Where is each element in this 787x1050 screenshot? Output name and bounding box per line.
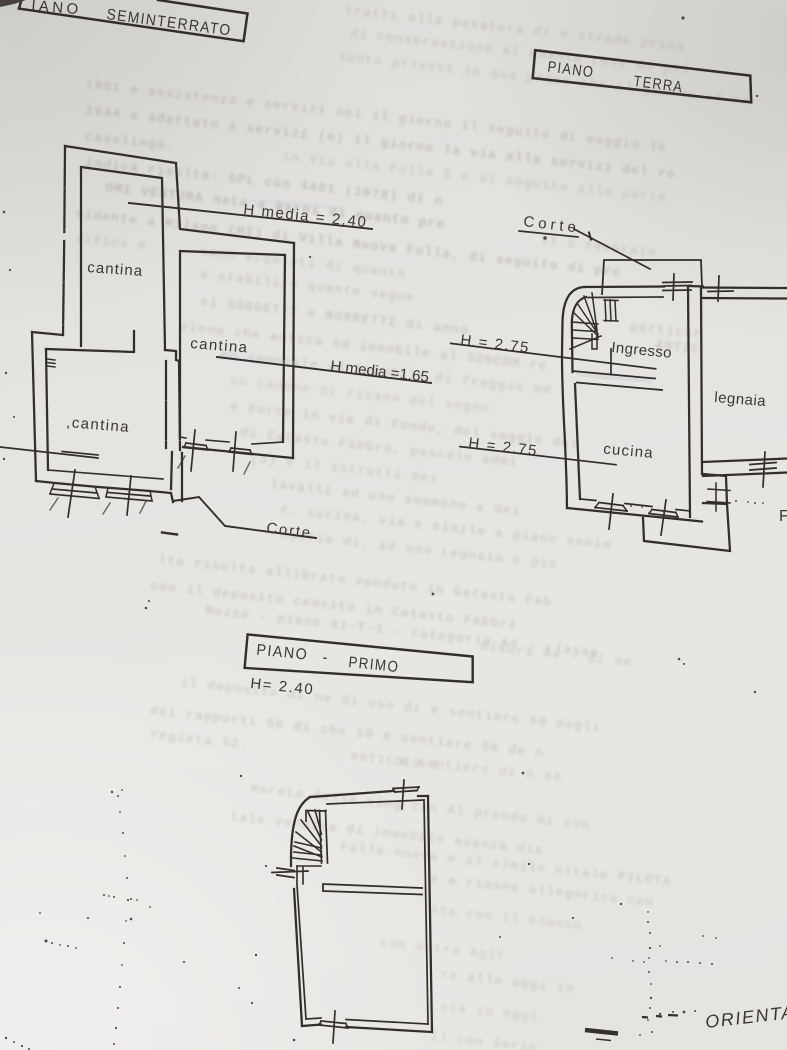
svg-text:il con Serie: il con Serie	[430, 1029, 539, 1050]
svg-text:legnaia: legnaia	[714, 389, 767, 410]
svg-text:il 5 febbraio: il 5 febbraio	[540, 233, 658, 261]
svg-text:sta con il blocco: sta con il blocco	[430, 902, 584, 933]
svg-text:-: -	[322, 649, 330, 667]
svg-text:PRIMO: PRIMO	[348, 654, 400, 676]
svg-text:sta in oggi: sta in oggi	[440, 999, 540, 1025]
svg-text:ORIENTAM: ORIENTAM	[704, 1000, 787, 1032]
svg-text:H media =1.65: H media =1.65	[330, 358, 430, 386]
svg-text:PIANO: PIANO	[256, 642, 309, 664]
svg-text:con entro Agit: con entro Agit	[380, 935, 507, 964]
svg-text:,cantina: ,cantina	[66, 414, 131, 436]
svg-text:ARTICOLO 2: ARTICOLO 2	[350, 749, 441, 774]
svg-text:cantina: cantina	[190, 335, 249, 357]
svg-text:cantina: cantina	[87, 259, 144, 280]
svg-text:re alle oggi in: re alle oggi in	[440, 967, 576, 996]
svg-text:F: F	[779, 508, 787, 525]
svg-text:IANO: IANO	[31, 0, 83, 18]
svg-text:SEMINTERRATO: SEMINTERRATO	[105, 6, 232, 40]
svg-text:cucina: cucina	[603, 441, 655, 462]
svg-text:Corte: Corte	[523, 213, 581, 237]
svg-text:difica e: difica e	[75, 231, 148, 254]
svg-text:Corte: Corte	[266, 520, 313, 542]
svg-text:regiata 52.: regiata 52.	[150, 727, 250, 753]
